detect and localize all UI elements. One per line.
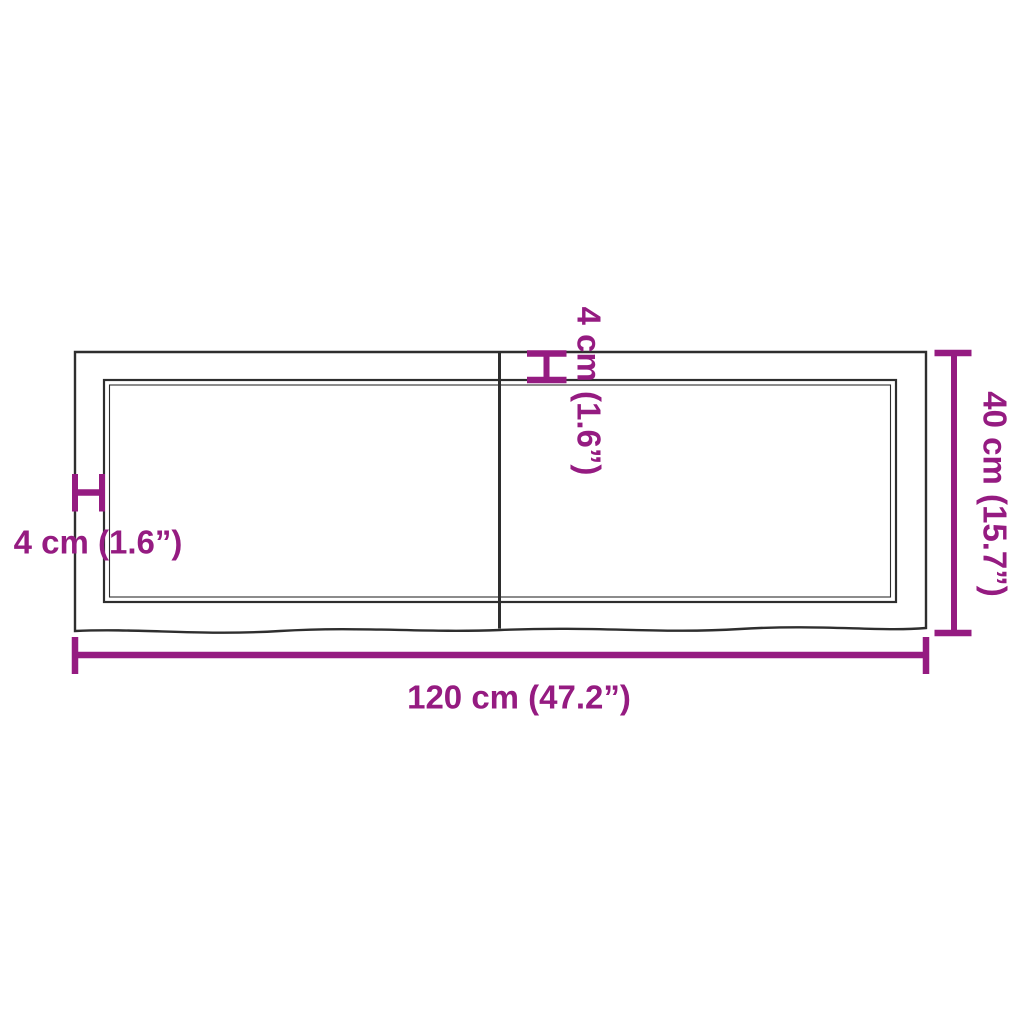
dimension-diagram-drawing — [0, 0, 1024, 1024]
height-dimension-line — [935, 353, 972, 633]
width-dimension-label: 120 cm (47.2”) — [407, 681, 631, 714]
left-thickness-label: 4 cm (1.6”) — [14, 526, 183, 559]
product-dimension-diagram: 120 cm (47.2”) 40 cm (15.7”) 4 cm (1.6”)… — [0, 0, 1024, 1024]
width-dimension-line — [75, 637, 926, 674]
top-thickness-label: 4 cm (1.6”) — [573, 307, 606, 476]
height-dimension-label: 40 cm (15.7”) — [979, 391, 1012, 596]
